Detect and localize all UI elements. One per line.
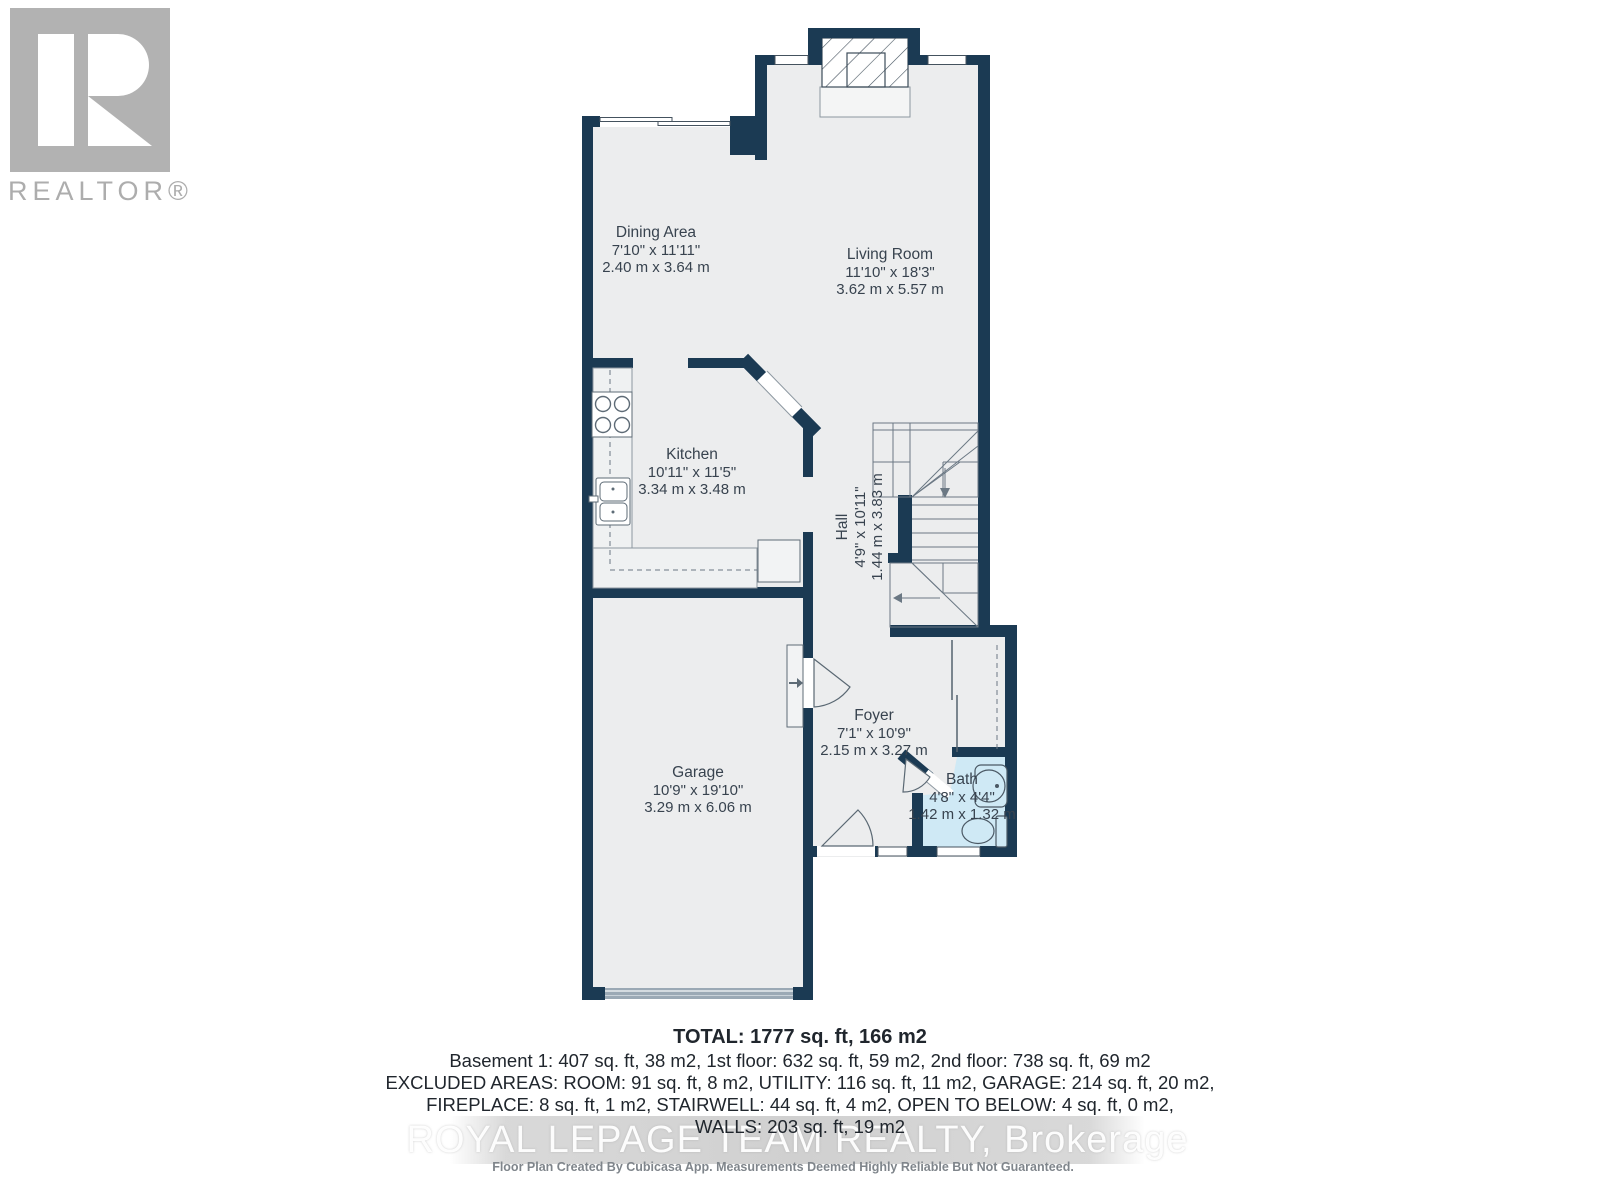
hall-name: Hall	[834, 473, 852, 581]
walls-area-line: WALLS: 203 sq. ft, 19 m2	[0, 1116, 1600, 1138]
bath-name: Bath	[908, 771, 1016, 789]
garage-name: Garage	[644, 764, 752, 782]
total-area-line: TOTAL: 1777 sq. ft, 166 m2	[0, 1026, 1600, 1048]
garage-metric: 3.29 m x 6.06 m	[644, 799, 752, 817]
fireplace-stairwell-line: FIREPLACE: 8 sq. ft, 1 m2, STAIRWELL: 44…	[0, 1094, 1600, 1116]
living-name: Living Room	[836, 246, 944, 264]
fireplace	[820, 38, 910, 117]
garage-door	[605, 988, 793, 999]
cubicasa-disclaimer: Floor Plan Created By Cubicasa App. Meas…	[0, 1160, 1566, 1174]
foyer-imperial: 7'1" x 10'9"	[820, 724, 928, 742]
floors-area-line: Basement 1: 407 sq. ft, 38 m2, 1st floor…	[0, 1050, 1600, 1072]
room-label-kitchen: Kitchen 10'11" x 11'5" 3.34 m x 3.48 m	[638, 446, 746, 499]
hall-imperial: 4'9" x 10'11"	[851, 473, 869, 581]
room-label-foyer: Foyer 7'1" x 10'9" 2.15 m x 3.27 m	[820, 707, 928, 760]
floor-plan-page: REALTOR® Dining Area 7'10" x 11'11" 2.40…	[0, 0, 1600, 1200]
room-label-hall: Hall 4'9" x 10'11" 1.44 m x 3.83 m	[834, 473, 887, 581]
bath-metric: 1.42 m x 1.32 m	[908, 806, 1016, 824]
realtor-logo-icon	[10, 8, 170, 172]
garage-imperial: 10'9" x 19'10"	[644, 781, 752, 799]
dining-metric: 2.40 m x 3.64 m	[602, 259, 710, 277]
living-imperial: 11'10" x 18'3"	[836, 263, 944, 281]
area-summary: TOTAL: 1777 sq. ft, 166 m2 Basement 1: 4…	[0, 1026, 1600, 1138]
room-label-garage: Garage 10'9" x 19'10" 3.29 m x 6.06 m	[644, 764, 752, 817]
dining-imperial: 7'10" x 11'11"	[602, 241, 710, 259]
hall-metric: 1.44 m x 3.83 m	[869, 473, 887, 581]
bath-imperial: 4'8" x 4'4"	[908, 788, 1016, 806]
kitchen-island	[758, 540, 800, 582]
room-label-dining: Dining Area 7'10" x 11'11" 2.40 m x 3.64…	[602, 224, 710, 277]
dining-name: Dining Area	[602, 224, 710, 242]
floor-plan-drawing	[0, 0, 1600, 1200]
kitchen-name: Kitchen	[638, 446, 746, 464]
kitchen-imperial: 10'11" x 11'5"	[638, 463, 746, 481]
foyer-metric: 2.15 m x 3.27 m	[820, 742, 928, 760]
sliding-door	[600, 116, 730, 127]
living-metric: 3.62 m x 5.57 m	[836, 281, 944, 299]
foyer-name: Foyer	[820, 707, 928, 725]
stove	[592, 392, 632, 437]
room-label-bath: Bath 4'8" x 4'4" 1.42 m x 1.32 m	[908, 771, 1016, 824]
garage-step	[787, 645, 803, 727]
room-label-living: Living Room 11'10" x 18'3" 3.62 m x 5.57…	[836, 246, 944, 299]
excluded-area-line: EXCLUDED AREAS: ROOM: 91 sq. ft, 8 m2, U…	[0, 1072, 1600, 1094]
realtor-logo-text: REALTOR®	[8, 176, 198, 207]
kitchen-metric: 3.34 m x 3.48 m	[638, 481, 746, 499]
